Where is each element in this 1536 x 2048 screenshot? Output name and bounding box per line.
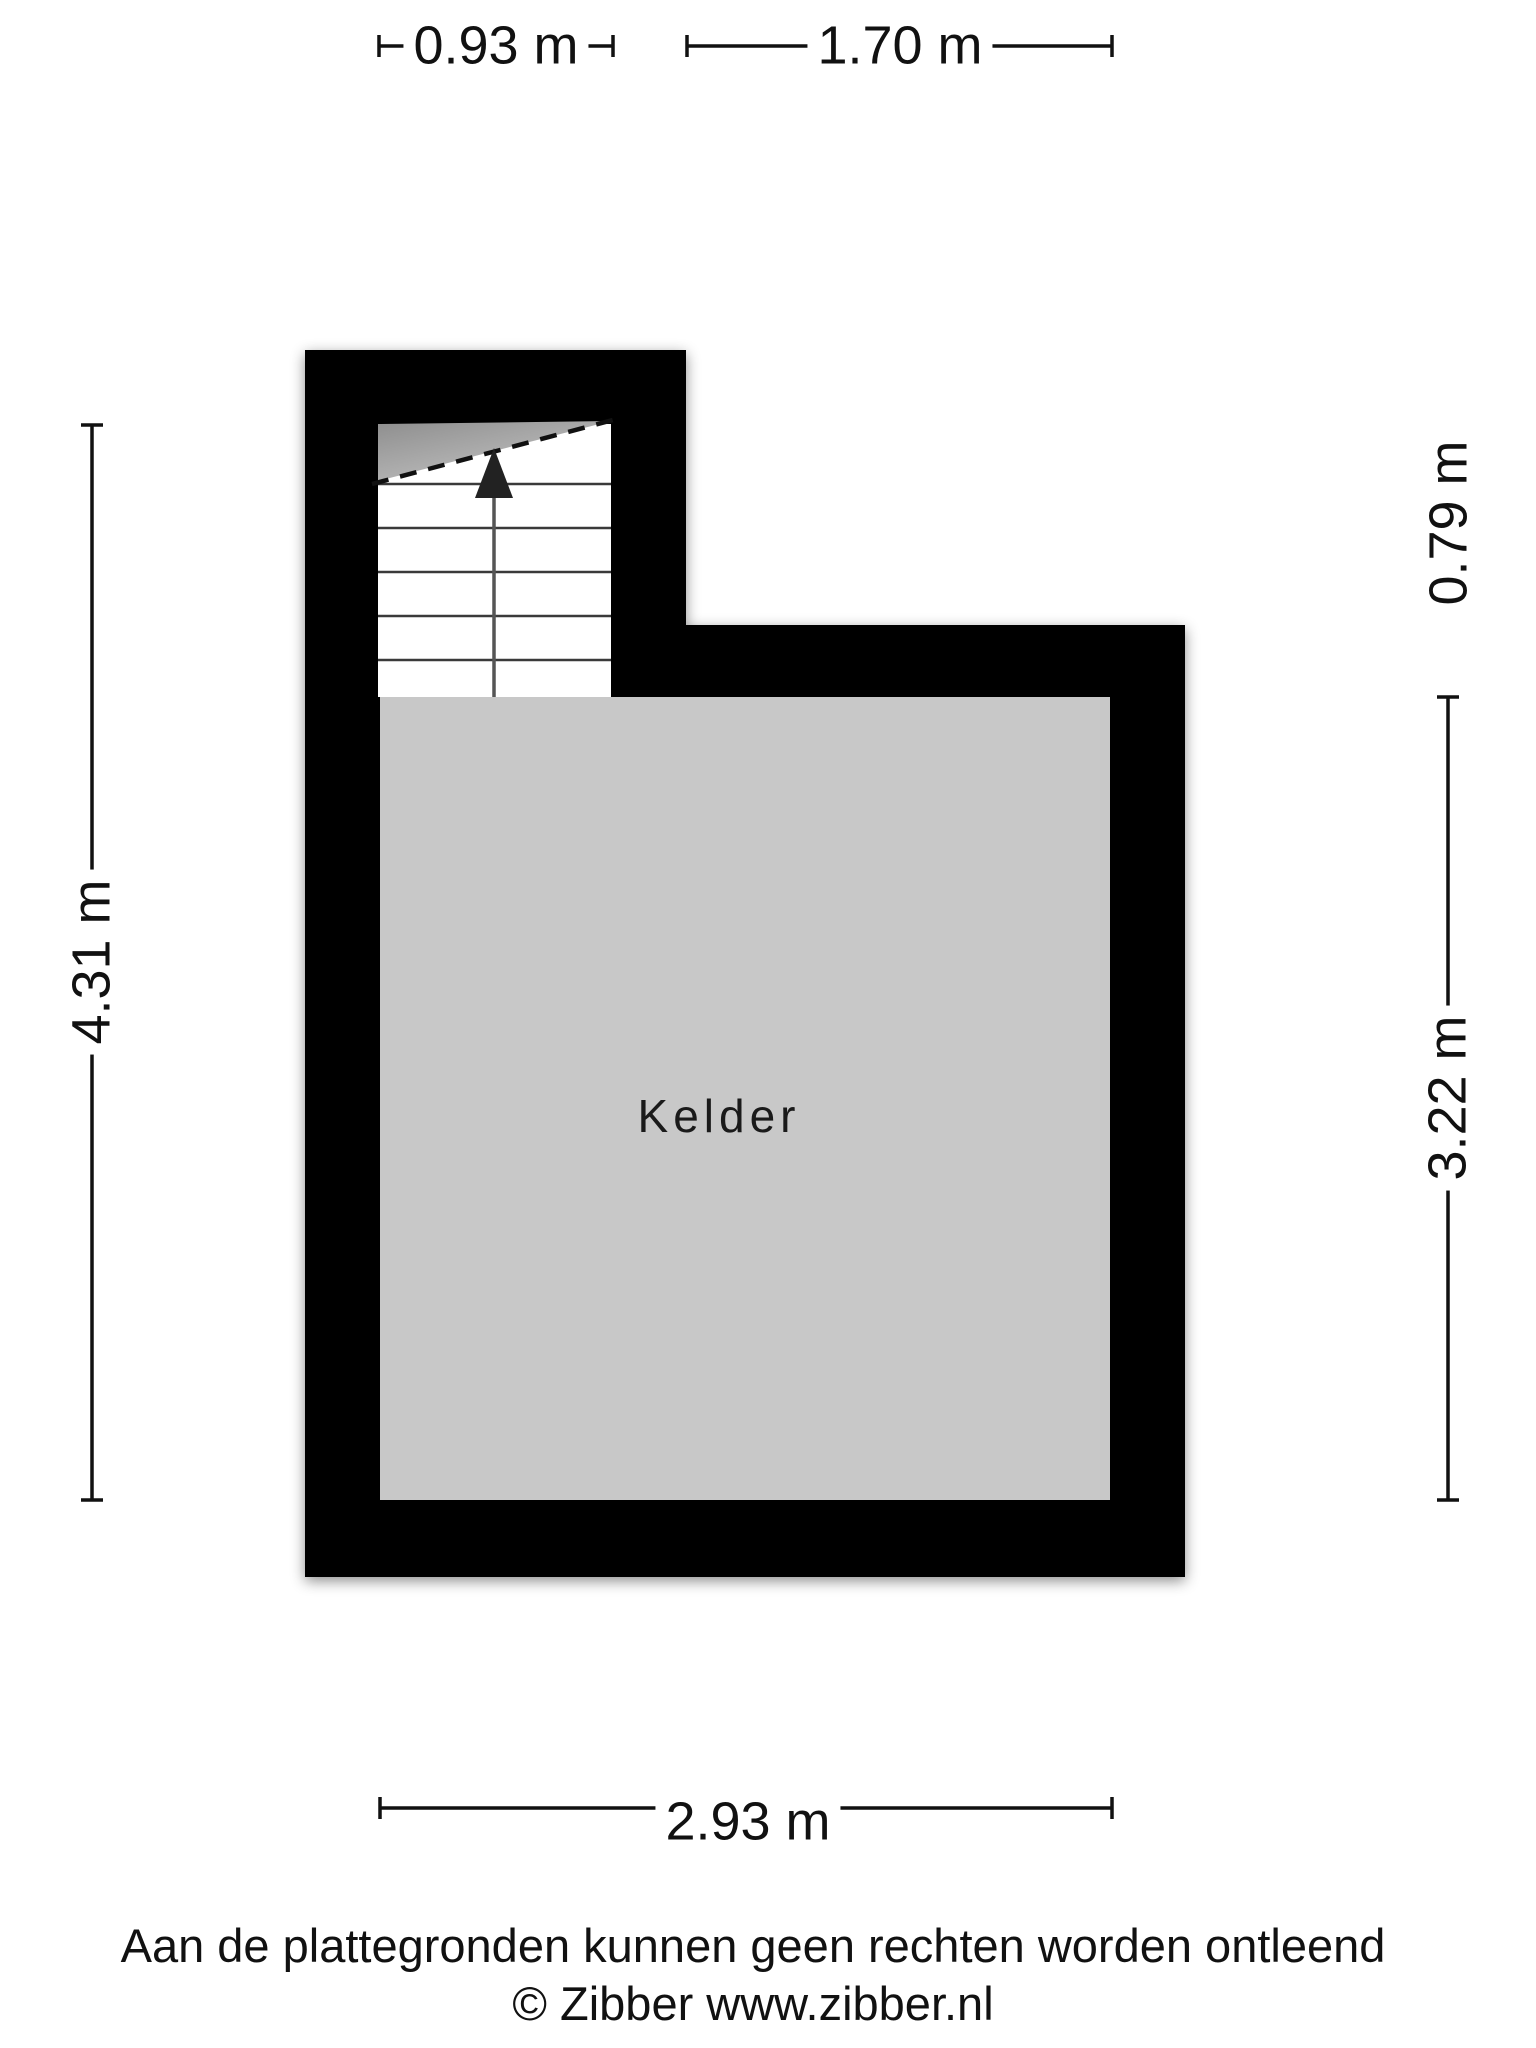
floor-plan	[0, 0, 1536, 2048]
dimension-label-right-upper: 0.79 m	[1419, 430, 1478, 615]
dimension-label-bottom: 2.93 m	[655, 1792, 840, 1851]
dimension-label-top-right: 1.70 m	[807, 16, 992, 75]
dimension-label-left: 4.31 m	[62, 869, 121, 1054]
dimension-label-right-lower: 3.22 m	[1418, 1005, 1477, 1190]
room-label-kelder: Kelder	[638, 1089, 801, 1143]
footer-copyright: © Zibber www.zibber.nl	[0, 1976, 1506, 2031]
floor-plan-page: 0.93 m 1.70 m 4.31 m 0.79 m 3.22 m 2.93 …	[0, 0, 1536, 2048]
dimension-label-top-left: 0.93 m	[403, 16, 588, 75]
footer-disclaimer: Aan de plattegronden kunnen geen rechten…	[0, 1918, 1506, 1973]
staircase	[372, 420, 613, 697]
